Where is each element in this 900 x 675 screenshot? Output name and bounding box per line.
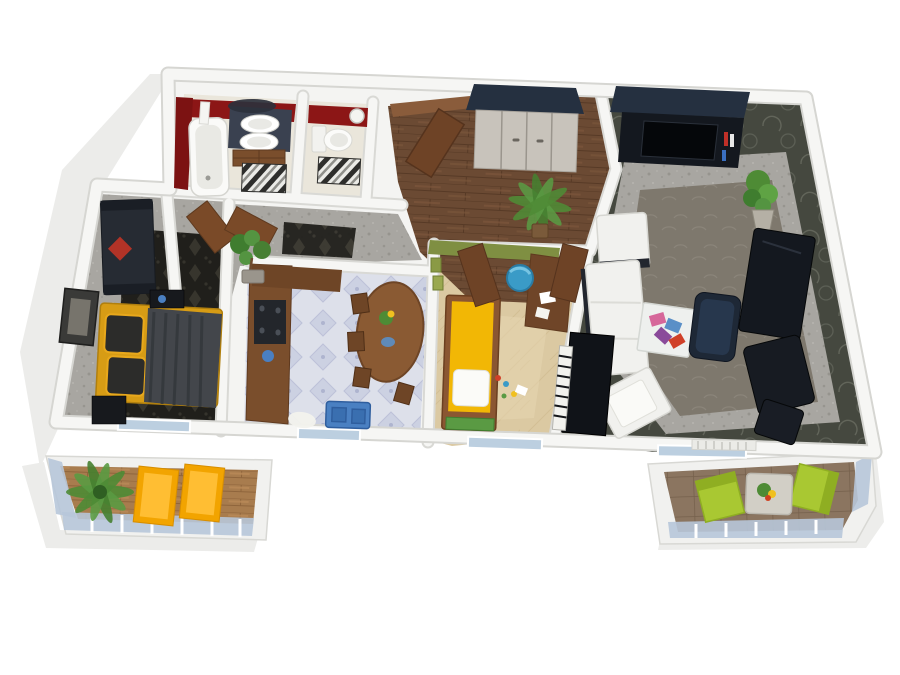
bath-rug [242,163,287,193]
apartment-floorplan-svg [0,0,900,675]
tv-shelf-book-3 [722,150,726,161]
bedroom-sofa-armrest-top [100,199,152,211]
window-children [468,437,542,451]
wall-picture-art [67,298,91,336]
nightstand-1 [150,290,184,308]
bonsai-pot [242,270,264,283]
children-poster-2 [433,276,443,290]
dining-chair-2 [348,332,365,352]
ottoman-top [695,298,735,356]
dining-flowers-yellow [388,311,395,318]
bed-blanket [144,308,222,408]
dining-plate [381,337,395,347]
dining-chair-3 [353,367,371,388]
toy-2 [503,381,509,387]
dining-chair-1 [351,293,369,314]
bedroom-sofa-armrest-bottom [103,283,155,295]
bonsai-foliage-3 [253,241,271,259]
children-poster-1 [431,258,441,272]
vanity-mirror [228,99,276,113]
palm-left-core [93,485,107,499]
window-kitchen [298,428,360,441]
floorplan-render [0,0,900,675]
kitchen-pot [262,350,274,362]
coffee-table [637,303,695,358]
patio-flowers-red [765,495,771,501]
nightstand-2 [92,396,126,424]
bed-pillow-2 [106,356,146,396]
tv-shelf-book-2 [730,134,734,147]
bathroom-towel [199,102,210,125]
kitchen-stove [254,300,286,344]
toy-4 [502,394,507,399]
children-bed-pillow [452,369,489,406]
tv-shelf-book-1 [724,132,728,146]
vanity-sink-1-basin [248,119,272,130]
sun-lounger-1-pad [140,473,172,520]
corridor-carpet-patch [282,222,356,258]
nightstand-1-decor [158,295,166,303]
toilet-seat [330,133,348,147]
children-bed-toybox [446,417,494,431]
sun-lounger-2-pad [186,471,218,516]
bed-pillow-1 [104,314,144,354]
living-plant-pot [752,210,774,230]
vanity-sink-2-basin [247,137,271,148]
tv-screen [641,121,718,160]
living-radiator-fins [698,441,746,450]
hall-palm-pot [532,224,548,238]
wc-rug [317,157,360,185]
window-bedroom-balcony [118,419,190,433]
toy-1 [495,375,501,381]
wardrobe-top [466,84,584,114]
bathtub-drain [206,176,211,181]
wc-bucket [350,109,364,123]
